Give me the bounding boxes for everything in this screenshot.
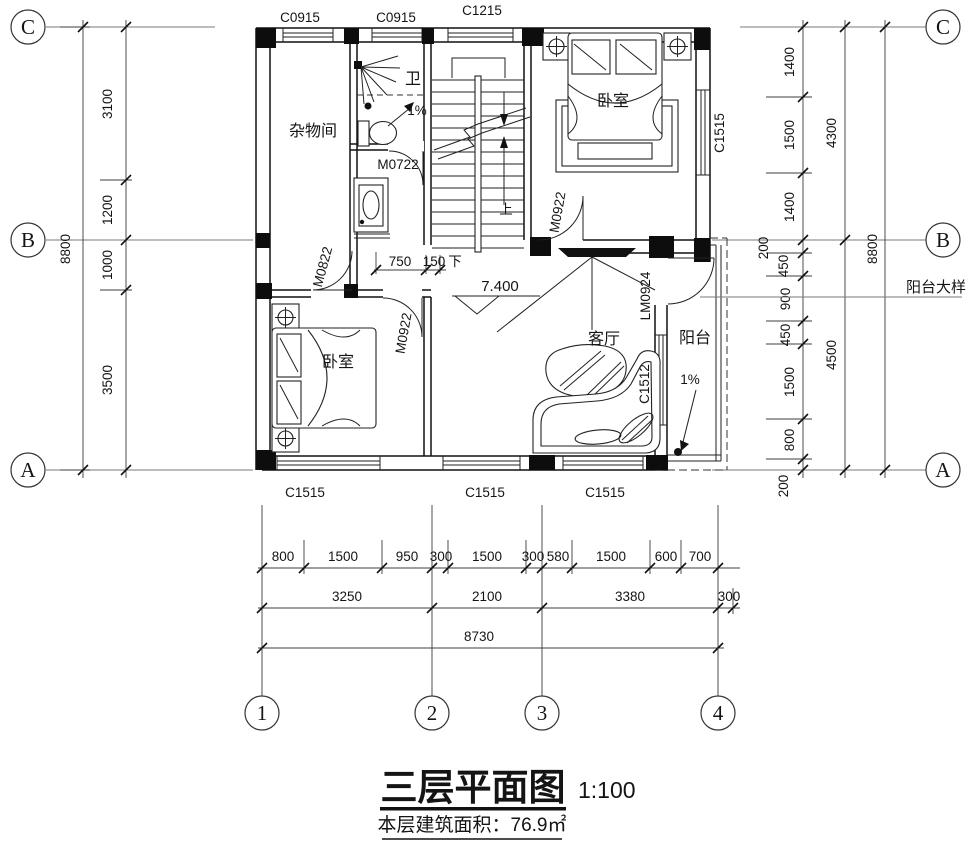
living-room-furniture <box>497 248 660 453</box>
dim-right-total: 8800 <box>865 234 880 264</box>
room-label-storage: 杂物间 <box>289 122 337 140</box>
title-block: 三层平面图 1:100 本层建筑面积：76.9㎡ <box>378 767 636 839</box>
window-label-c0915-b: C0915 <box>376 10 416 25</box>
window-label-c1215: C1215 <box>462 3 502 18</box>
dim-right-450a: 450 <box>776 255 791 278</box>
level-value: 7.400 <box>481 278 519 295</box>
sink-tap <box>360 220 364 224</box>
dim-right-4500: 4500 <box>824 340 839 370</box>
bed <box>272 328 376 428</box>
dim-right-800: 800 <box>782 429 797 452</box>
dim-b1-300b: 300 <box>522 549 545 564</box>
window-c0915-a <box>283 28 333 42</box>
balcony-detail-label: 阳台大样 <box>906 279 966 296</box>
dim-right-900: 900 <box>778 288 793 311</box>
dim-b1-1500b: 1500 <box>472 549 502 564</box>
stair-down-label: 下 <box>448 254 462 269</box>
bath-slope-label: 1% <box>407 103 427 118</box>
dim-b1-950: 950 <box>396 549 419 564</box>
floor-plan-page: 3100 1200 1000 3500 8800 1400 1500 1400 … <box>0 0 969 850</box>
dim-left-3100: 3100 <box>100 89 115 119</box>
grid-label-B-left: B <box>21 228 35 252</box>
balcony-slope-arrow <box>680 440 689 451</box>
window-label-c0915-a: C0915 <box>280 10 320 25</box>
stair-arrow-up <box>500 136 508 148</box>
dim-right-200b: 200 <box>776 475 791 498</box>
dim-b1-600: 600 <box>655 549 678 564</box>
room-label-bath: 卫 <box>405 71 421 88</box>
window-label-c1515-b: C1515 <box>465 485 505 500</box>
window-c0915-b <box>372 28 422 42</box>
grid-label-A-left: A <box>20 458 36 482</box>
dim-right-1400b: 1400 <box>782 192 797 222</box>
dim-b3-8730: 8730 <box>464 629 494 644</box>
room-label-balcony: 阳台 <box>679 329 711 347</box>
balcony-drain-icon <box>674 448 682 456</box>
window-label-c1515-a: C1515 <box>285 485 325 500</box>
dim-b1-300a: 300 <box>430 549 453 564</box>
bed <box>568 33 662 140</box>
dim-right-200a: 200 <box>756 237 771 260</box>
dim-left-1000: 1000 <box>100 250 115 280</box>
window-label-c1515-c: C1515 <box>585 485 625 500</box>
bottom-dimensions: 800 1500 950 300 1500 300 580 1500 600 7… <box>257 505 740 653</box>
shower-spray-icon <box>361 56 400 104</box>
stair-up-label: 上 <box>499 202 513 217</box>
stair-dim-150: 150 <box>423 254 446 269</box>
balcony-details <box>674 297 962 456</box>
grid-label-4: 4 <box>713 701 724 725</box>
dim-b1-700: 700 <box>689 549 712 564</box>
bedroom-bottom-furniture <box>272 304 376 452</box>
dim-right-1500b: 1500 <box>782 367 797 397</box>
window-c1215 <box>448 28 513 42</box>
dim-b1-800: 800 <box>272 549 295 564</box>
grid-label-3: 3 <box>537 701 548 725</box>
stair-arrow-down <box>500 114 508 126</box>
window-c1515-right <box>696 90 710 175</box>
door-label-m0922-lower: M0922 <box>393 312 415 355</box>
grid-label-C-left: C <box>21 15 35 39</box>
dim-right-1400a: 1400 <box>782 47 797 77</box>
drawing-scale: 1:100 <box>578 777 636 803</box>
grid-label-2: 2 <box>427 701 438 725</box>
window-label-c1512: C1512 <box>637 364 652 404</box>
tv-leader-lines <box>497 257 655 332</box>
left-dimensions: 3100 1200 1000 3500 8800 <box>58 20 132 478</box>
window-c1515-bottom-c <box>563 456 643 470</box>
dim-b1-580: 580 <box>547 549 570 564</box>
grid-label-1: 1 <box>257 701 268 725</box>
right-dimensions: 1400 1500 1400 200 450 900 450 1500 800 … <box>756 20 890 497</box>
dim-b2-300: 300 <box>718 589 741 604</box>
room-label-bedroom-top: 卧室 <box>597 92 629 110</box>
floor-drain-icon <box>365 103 372 110</box>
door-label-m0822: M0822 <box>310 245 335 289</box>
dim-b2-2100: 2100 <box>472 589 502 604</box>
toilet-bowl <box>370 122 397 145</box>
room-label-bedroom-bottom: 卧室 <box>322 353 354 371</box>
title-underline <box>380 807 566 811</box>
grid-label-A-right: A <box>935 458 951 482</box>
dim-right-1500a: 1500 <box>782 120 797 150</box>
dim-b2-3380: 3380 <box>615 589 645 604</box>
stair-handrail <box>475 76 481 252</box>
bed-bench <box>578 143 652 159</box>
window-label-c1515-right: C1515 <box>712 113 727 153</box>
dim-left-1200: 1200 <box>100 195 115 225</box>
drawing-title: 三层平面图 <box>381 767 566 808</box>
tv-icon <box>558 248 636 257</box>
area-note: 本层建筑面积：76.9㎡ <box>378 813 567 836</box>
window-c1515-bottom-a <box>277 456 380 470</box>
balcony-slope-label: 1% <box>680 372 700 387</box>
dim-right-4300: 4300 <box>824 118 839 148</box>
dim-left-3500: 3500 <box>100 365 115 395</box>
room-label-living: 客厅 <box>588 330 620 348</box>
toilet-tank <box>358 121 369 146</box>
door-label-m0922-upper: M0922 <box>547 191 569 234</box>
dim-b2-3250: 3250 <box>332 589 362 604</box>
grid-label-C-right: C <box>936 15 950 39</box>
door-label-m0722: M0722 <box>377 157 418 172</box>
dim-b1-1500a: 1500 <box>328 549 358 564</box>
floor-plan-drawing: 3100 1200 1000 3500 8800 1400 1500 1400 … <box>0 0 969 850</box>
window-c1515-bottom-b <box>443 456 520 470</box>
dim-b1-1500c: 1500 <box>596 549 626 564</box>
grid-label-B-right: B <box>936 228 950 252</box>
grid-bubbles: C B A C B A 1 2 3 4 <box>11 10 960 730</box>
dim-left-total: 8800 <box>58 234 73 264</box>
dim-right-450b: 450 <box>778 324 793 347</box>
stair-dim-750: 750 <box>389 254 412 269</box>
door-label-lm0924: LM0924 <box>638 271 653 320</box>
